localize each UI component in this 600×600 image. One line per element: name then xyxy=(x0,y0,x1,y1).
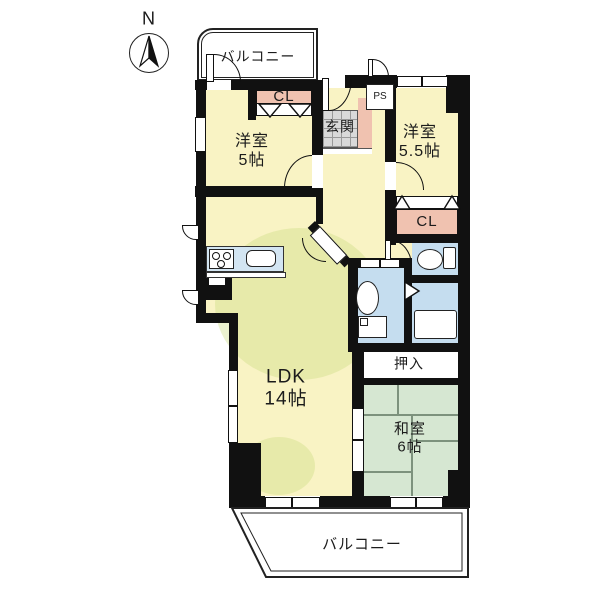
western55-size: 5.5帖 xyxy=(399,143,441,162)
japanese-room-size: 6帖 xyxy=(394,438,426,456)
closet-chevron-icon xyxy=(394,196,410,209)
western55-label: 洋室 5.5帖 xyxy=(399,124,441,162)
western5-size: 5帖 xyxy=(235,152,269,171)
japanese-room-label: 和室 6帖 xyxy=(394,420,426,455)
compass-needle-west xyxy=(140,36,149,66)
balcony-top-label: バルコニー xyxy=(221,49,296,66)
ldk-size: 14帖 xyxy=(264,389,307,411)
compass-needle-east xyxy=(149,36,158,66)
western5-label: 洋室 5帖 xyxy=(235,133,269,171)
ldk-name: LDK xyxy=(264,367,307,389)
closet-chevron-icon xyxy=(259,104,281,117)
japanese-room-name: 和室 xyxy=(394,420,426,438)
western55-name: 洋室 xyxy=(399,124,441,143)
overlay-shapes xyxy=(0,0,600,600)
closet-chevron-icon xyxy=(444,196,460,209)
folding-door-icon xyxy=(405,282,419,300)
ldk-label: LDK 14帖 xyxy=(264,367,307,412)
pipe-space-label: PS xyxy=(373,91,386,103)
balcony-bottom-label: バルコニー xyxy=(322,536,402,554)
closet-east-label: CL xyxy=(416,213,437,231)
oshiire-label: 押入 xyxy=(394,356,424,373)
closet-chevron-icon xyxy=(289,104,311,117)
floor-plan: N バルコニー バルコニー CL CL PS 玄関 洋室 5帖 洋室 5.5帖 … xyxy=(0,0,600,600)
western5-name: 洋室 xyxy=(235,133,269,152)
closet-top-label: CL xyxy=(273,88,294,106)
compass-label: N xyxy=(142,8,156,29)
entrance-label: 玄関 xyxy=(325,119,355,136)
